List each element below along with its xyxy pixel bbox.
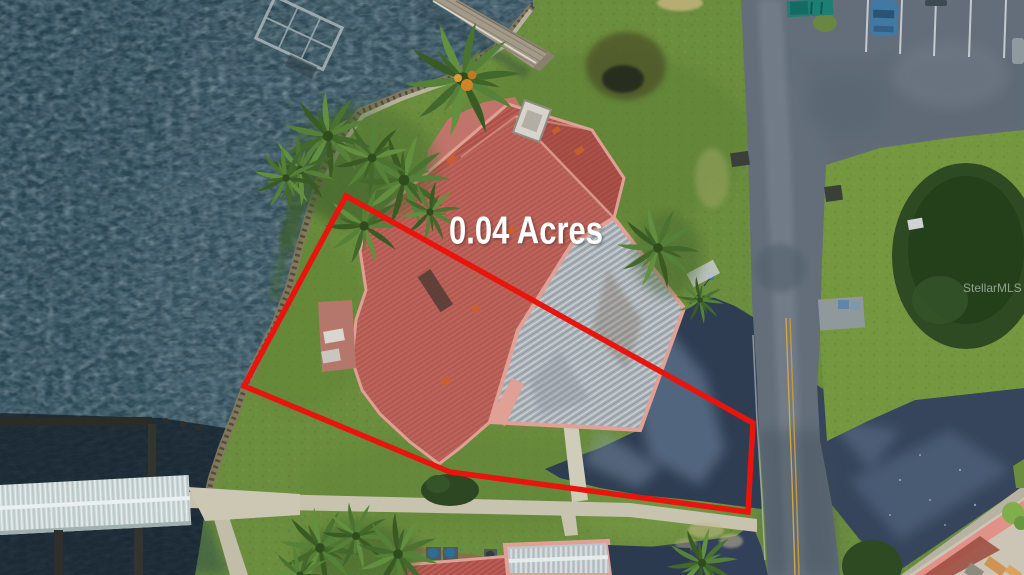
svg-text:StellarMLS: StellarMLS bbox=[963, 281, 1022, 295]
svg-text:0.04 Acres: 0.04 Acres bbox=[449, 210, 603, 253]
